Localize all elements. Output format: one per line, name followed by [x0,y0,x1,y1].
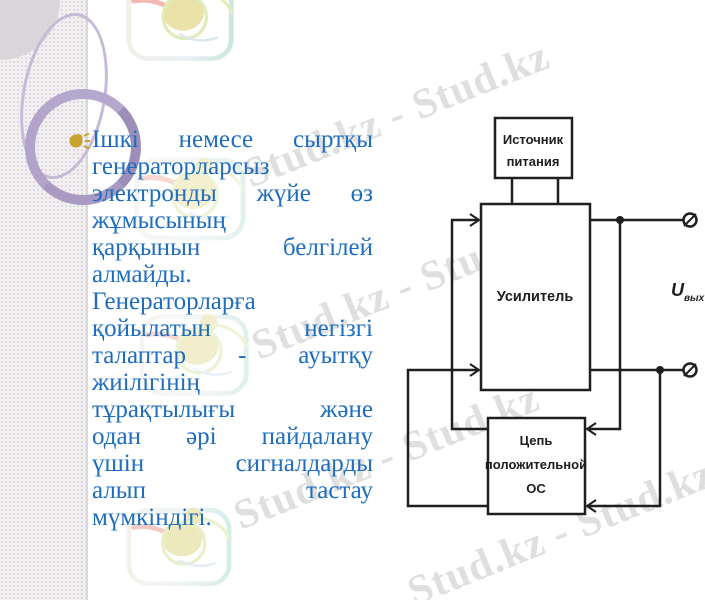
power-supply-label-line1: Источник [503,132,564,147]
feedback-label-line2: положительной [485,457,587,472]
presentation-slide: Stud.kz - Stud.kz Stud.kz - Stud.kz Stud… [0,0,705,600]
junction-dot-bottom [656,366,664,374]
text-line: үшін сигналдарды [92,450,373,477]
text-line: одан әрі пайдалану [92,423,373,450]
body-text-block: Ішкі немесе сыртқыгенераторларсызэлектро… [92,126,373,531]
text-line: жиілігінің [92,369,373,396]
text-line: мүмкіндігі. [92,504,373,531]
text-line: қарқынын белгілей [92,234,373,261]
amplifier-label: Усилитель [497,289,574,305]
power-supply-box [495,118,572,178]
output-terminal-top [684,214,697,227]
text-line: Ішкі немесе сыртқы [92,126,373,153]
output-voltage-label: Uвых [671,280,705,304]
text-line: электронды жүйе өз [92,180,373,207]
text-line: генераторларсыз [92,153,373,180]
text-line: алып тастау [92,477,373,504]
text-line: жұмысының [92,207,373,234]
text-line: талаптар - ауытқу [92,342,373,369]
junction-dot-top [616,216,624,224]
oscillator-block-diagram: Источник питания Усилитель Цепь положите… [380,100,705,540]
studkz-logo-watermark-icon [124,0,236,70]
text-line: алмайды. [92,261,373,288]
feedback-label-line3: ОС [526,481,546,496]
text-line: қойылатын негізгі [92,315,373,342]
power-supply-label-line2: питания [507,154,560,169]
bullet-icon [67,129,91,153]
feedback-label-line1: Цепь [520,433,553,448]
text-line: тұрақтылығы және [92,396,373,423]
output-terminal-bottom [684,364,697,377]
text-line: Генераторларға [92,288,373,315]
